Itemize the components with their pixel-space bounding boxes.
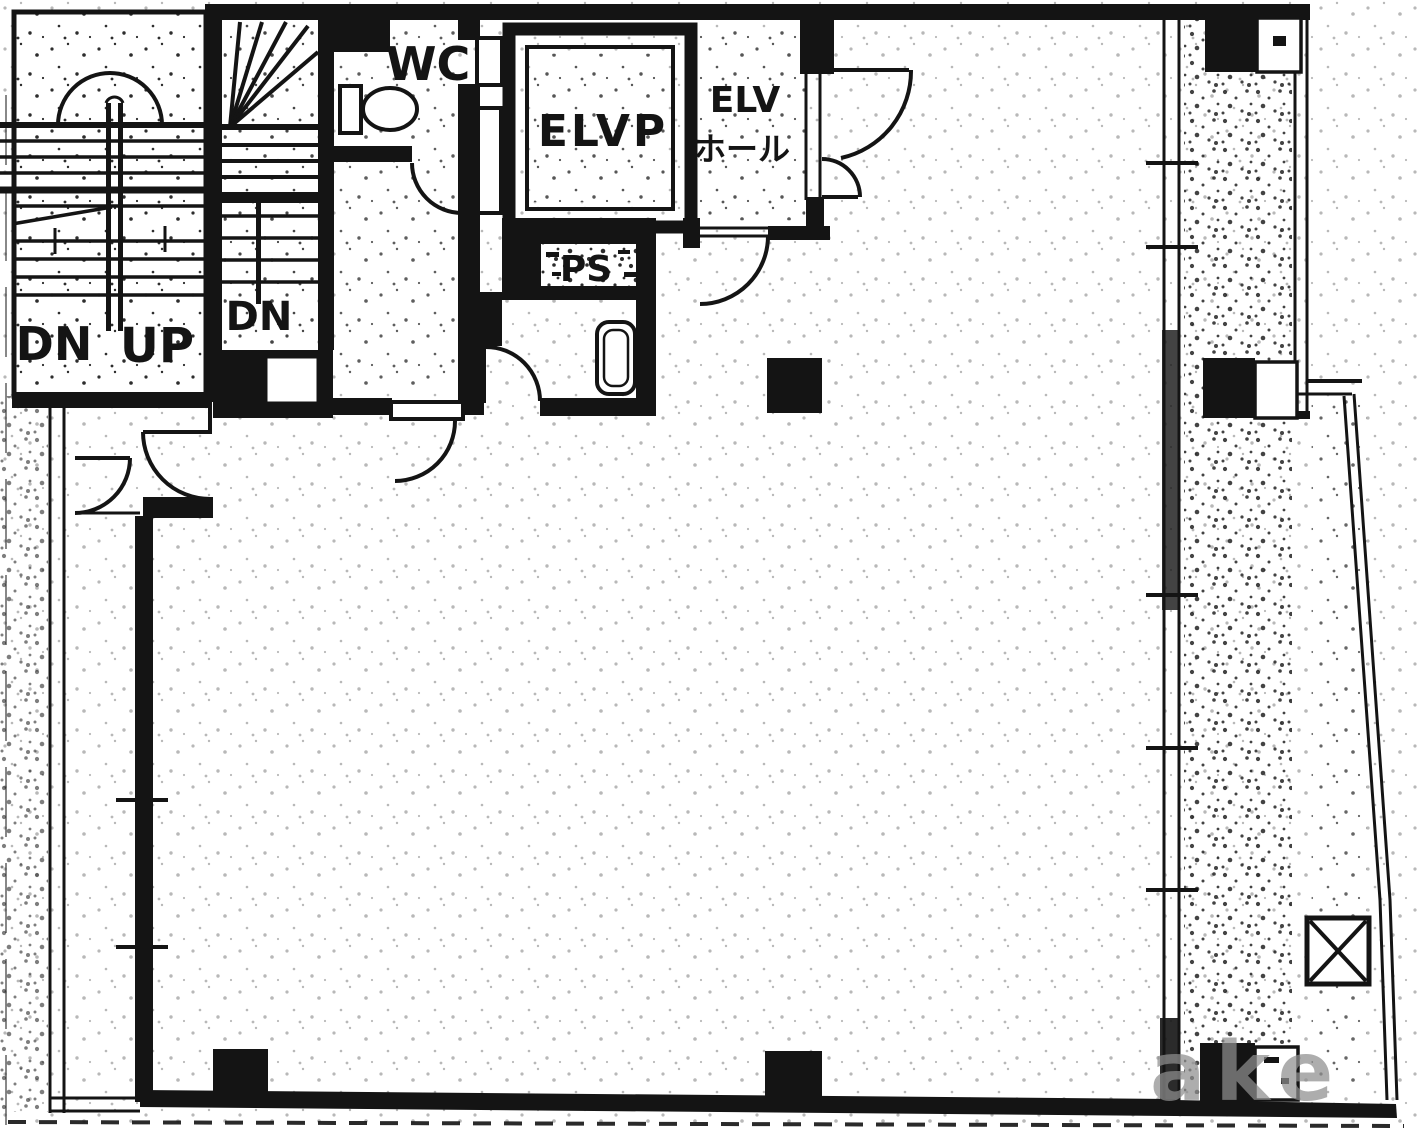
main-left-wall bbox=[135, 516, 153, 1102]
watermark-text: ake bbox=[1150, 1025, 1343, 1120]
wc-label: WC bbox=[386, 37, 471, 91]
wc-door-leaf bbox=[477, 38, 502, 85]
elv-hall-label: ホール bbox=[694, 130, 790, 168]
winder-down-label: DN bbox=[226, 294, 293, 340]
floorplan-scan: DN UP DN bbox=[0, 0, 1420, 1129]
wc-bottom-wall bbox=[330, 146, 412, 162]
hall-door-leaf bbox=[391, 402, 463, 419]
elvp-label: ELVP bbox=[538, 106, 668, 157]
elv-label: ELV bbox=[710, 80, 781, 121]
floorplan-drawing: DN UP DN bbox=[0, 0, 1420, 1129]
winder-rail bbox=[256, 192, 261, 304]
winder-right-wall bbox=[318, 12, 334, 350]
stair-divider-wall bbox=[205, 12, 222, 402]
basin-icon bbox=[597, 322, 635, 394]
toilet-icon bbox=[340, 86, 417, 133]
ps-label: PS bbox=[560, 249, 612, 290]
x-marked-shaft-icon bbox=[1307, 918, 1369, 984]
washroom-right-wall bbox=[636, 218, 656, 416]
corridor-door-leaf bbox=[478, 108, 501, 213]
column bbox=[767, 358, 822, 413]
stair-bottom-wall bbox=[12, 392, 212, 408]
stair-down-label: DN bbox=[16, 317, 93, 371]
pipe-shaft: PS bbox=[502, 218, 656, 300]
stair-up-label: UP bbox=[120, 318, 194, 374]
